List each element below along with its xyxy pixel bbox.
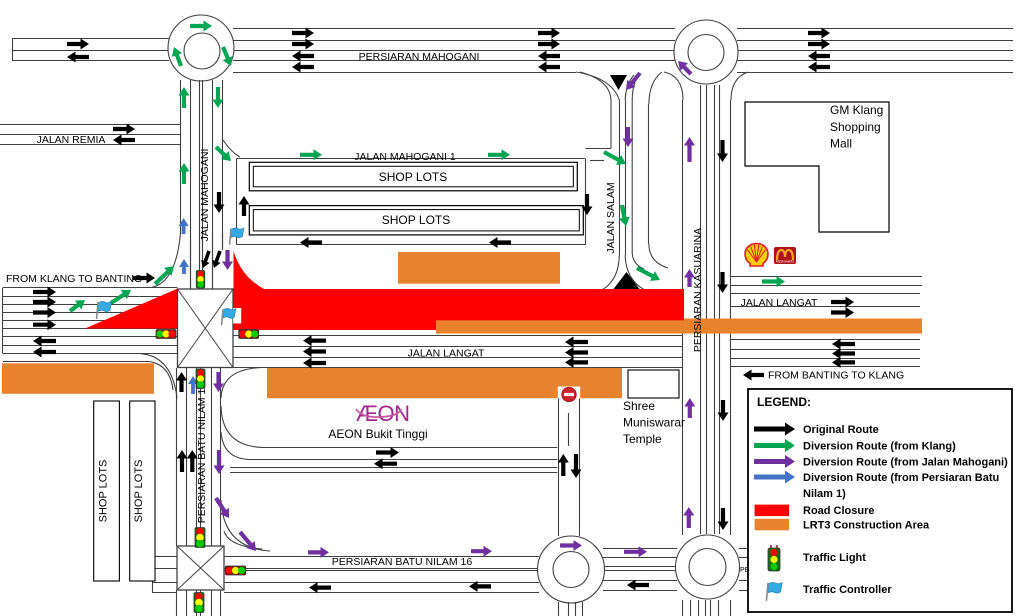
svg-text:JALAN SALAM: JALAN SALAM	[605, 182, 617, 253]
svg-text:Nilam 1): Nilam 1)	[803, 488, 846, 500]
svg-text:JALAN REMIA: JALAN REMIA	[37, 134, 106, 146]
svg-text:PERSIARAN BATU NILAM 16: PERSIARAN BATU NILAM 16	[332, 556, 473, 568]
svg-text:Shree: Shree	[623, 399, 655, 413]
svg-text:FROM BANTING TO KLANG: FROM BANTING TO KLANG	[768, 370, 904, 382]
svg-text:Traffic Light: Traffic Light	[803, 552, 866, 564]
svg-text:Diversion Route (from Persiara: Diversion Route (from Persiaran Batu	[803, 472, 999, 484]
svg-text:Muniswarar: Muniswarar	[623, 416, 685, 430]
svg-text:Original Route: Original Route	[803, 424, 879, 436]
svg-text:Shopping: Shopping	[830, 120, 881, 134]
svg-text:SHOP LOTS: SHOP LOTS	[379, 170, 447, 184]
svg-text:PERSIARAN BATU NILAM 1: PERSIARAN BATU NILAM 1	[196, 389, 208, 524]
svg-text:Diversion Route (from Klang): Diversion Route (from Klang)	[803, 441, 956, 453]
svg-text:AEON Bukit Tinggi: AEON Bukit Tinggi	[328, 427, 427, 441]
svg-text:JALAN LANGAT: JALAN LANGAT	[741, 297, 818, 309]
svg-text:PERSIARAN KASUARINA: PERSIARAN KASUARINA	[692, 228, 704, 352]
svg-text:JALAN MAHOGANI 1: JALAN MAHOGANI 1	[354, 151, 456, 163]
svg-text:Mall: Mall	[830, 137, 852, 151]
svg-text:GM Klang: GM Klang	[830, 103, 883, 117]
svg-text:JALAN MAHOGANI: JALAN MAHOGANI	[199, 149, 211, 242]
svg-text:McDonald's: McDonald's	[776, 260, 794, 264]
svg-text:LEGEND:: LEGEND:	[757, 395, 811, 409]
svg-text:PERSIARAN MAHOGANI: PERSIARAN MAHOGANI	[359, 51, 480, 63]
svg-text:LRT3 Construction Area: LRT3 Construction Area	[803, 520, 930, 532]
svg-text:Road Closure: Road Closure	[803, 505, 875, 517]
svg-text:Diversion Route (from Jalan Ma: Diversion Route (from Jalan Mahogani)	[803, 457, 1008, 469]
svg-text:Temple: Temple	[623, 432, 662, 446]
svg-text:Traffic Controller: Traffic Controller	[803, 584, 892, 596]
svg-text:ÆON: ÆON	[356, 401, 410, 426]
svg-text:SHOP LOTS: SHOP LOTS	[382, 213, 450, 227]
svg-text:FROM KLANG TO BANTING: FROM KLANG TO BANTING	[6, 273, 142, 285]
svg-text:JALAN LANGAT: JALAN LANGAT	[408, 348, 485, 360]
svg-text:SHOP LOTS: SHOP LOTS	[133, 460, 145, 523]
svg-text:SHOP LOTS: SHOP LOTS	[98, 460, 110, 523]
